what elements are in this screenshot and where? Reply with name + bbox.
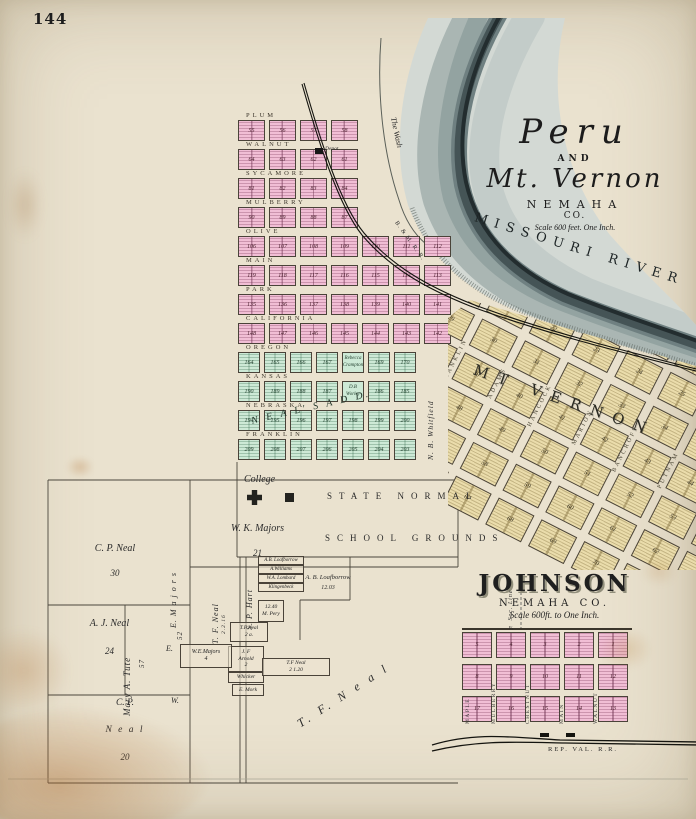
rep-val-railroad-label: REP. VAL. R.R. [548, 746, 618, 753]
parcel-tf-neal-120-box: T.F Neal 2 1.20 [262, 658, 330, 676]
parcel-tf-neal-120-name: T.F Neal [286, 660, 305, 667]
parcel-e-majors-name: E. M a j o r s [169, 556, 178, 628]
direction-east-label: E. [166, 644, 173, 653]
parcel-popy-name: M. Pery [262, 611, 280, 618]
parcel-loafborrow-name: A. B. Loafborrow [296, 574, 360, 581]
parcel-e-majors-acres: 52 [176, 620, 184, 640]
parcel-tf-neal-strip-name: T. F. Neal [211, 584, 220, 644]
school-grounds-label: SCHOOL GROUNDS [325, 533, 504, 543]
title-mt-vernon: Mt. Vernon [455, 164, 695, 194]
parcel-aj-neal-name: A. J. Neal [52, 618, 167, 629]
depot-icon [315, 148, 323, 154]
depot-building-icon [540, 733, 549, 737]
parcel-cp-neal20-line2: N e a l [85, 725, 165, 735]
parcel-tf-neal-2a-acres: 2 a. [245, 632, 253, 639]
johnson-title-block: JOHNSON NEMAHA CO. Scale 600ft. to One I… [452, 570, 657, 620]
parcel-we-majors-acres: 4 [205, 656, 208, 663]
parcel-mary-tute-acres: 57 [138, 638, 146, 668]
parcel-loafborrow-acres: 12.03 [296, 585, 360, 591]
title-and: AND [455, 154, 695, 164]
state-normal-label: STATE NORMAL [327, 491, 479, 501]
parcel-tf-neal-strip-acres: 2.2.16 [221, 594, 227, 634]
parcel-we-majors-box: W.E.Majors 4 [180, 644, 232, 668]
johnson-county: NEMAHA CO. [452, 598, 657, 609]
atlas-page: PLUM55565758WALNUT64636261SYCAMORE818283… [0, 0, 696, 819]
parcel-mary-tute-name: Mary A. Tute [122, 612, 132, 716]
parcel-aj-neal-acres: 24 [52, 646, 167, 656]
parcel-we-majors-name: W.E.Majors [192, 649, 220, 656]
parcel-jf-arnold-box: J. F Arnold 2 [228, 646, 264, 672]
parcel-jf-arnold-line1: J. F [242, 649, 251, 656]
title-peru: Peru [455, 112, 695, 152]
parcel-tf-neal-120-acres: 2 1.20 [289, 667, 303, 674]
parcel-popy-acres: 12.40 [265, 604, 277, 611]
parcel-jf-arnold-line2: Arnold [238, 656, 253, 663]
parcel-popy-box: 12.40 M. Pery [258, 600, 284, 622]
parcel-whicker-box: Whicker [228, 672, 264, 683]
johnson-scale: Scale 600ft. to One Inch. [452, 610, 657, 620]
title-county: NEMAHA [455, 198, 695, 211]
direction-west-label: W. [171, 696, 179, 705]
parcel-jf-arnold-acres: 2 [245, 662, 248, 669]
depot-label: Depot [325, 146, 338, 152]
parcel-cp-neal30-acres: 30 [60, 568, 170, 578]
whitfield-label: N. B. Whitfield [426, 350, 435, 460]
page-number: 144 [33, 10, 67, 28]
johnson-title: JOHNSON [452, 570, 657, 597]
parcel-cp-neal30-name: C. P. Neal [60, 543, 170, 554]
parcel-e-mork-name: E. Mork [239, 687, 257, 694]
school-building-icon [285, 493, 294, 502]
college-label: College [244, 474, 275, 485]
parcel-wk-majors-name: W. K. Majors [200, 523, 315, 534]
depot-building-icon [566, 733, 575, 737]
parcel-wk-majors-acres: 21 [200, 548, 315, 558]
quarter-sec-line-label: ¼ Sec. Line [508, 590, 514, 630]
parcel-e-mork-box: E. Mork [232, 684, 264, 696]
parcel-whicker-name: Whicker [237, 674, 255, 681]
parcel-sp-hart-name: S. P. Hart [245, 572, 254, 630]
parcel-cp-neal20-acres: 20 [85, 752, 165, 762]
small-lot-box: A.Williams [258, 565, 304, 574]
